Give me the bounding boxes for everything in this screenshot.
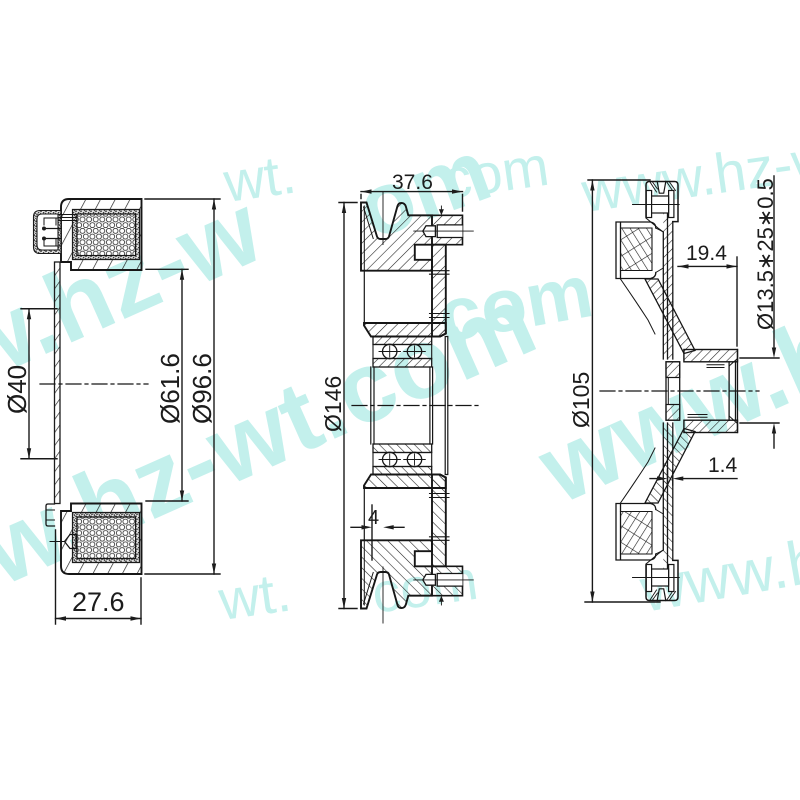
svg-text:Ø13.5∗25∗0.5: Ø13.5∗25∗0.5 [753,178,778,330]
svg-text:Ø105: Ø105 [568,372,594,428]
svg-text:19.4: 19.4 [686,242,727,265]
svg-text:Ø61.6: Ø61.6 [155,353,185,424]
svg-text:Ø146: Ø146 [320,376,346,432]
svg-text:wt.: wt. [219,142,300,214]
svg-text:Ø40: Ø40 [2,365,32,414]
svg-text:27.6: 27.6 [72,587,125,617]
svg-text:wt.: wt. [214,560,295,632]
svg-text:1.4: 1.4 [708,454,738,477]
svg-text:37.6: 37.6 [392,171,433,194]
svg-text:Ø96.6: Ø96.6 [187,353,217,424]
svg-text:4: 4 [368,507,379,529]
